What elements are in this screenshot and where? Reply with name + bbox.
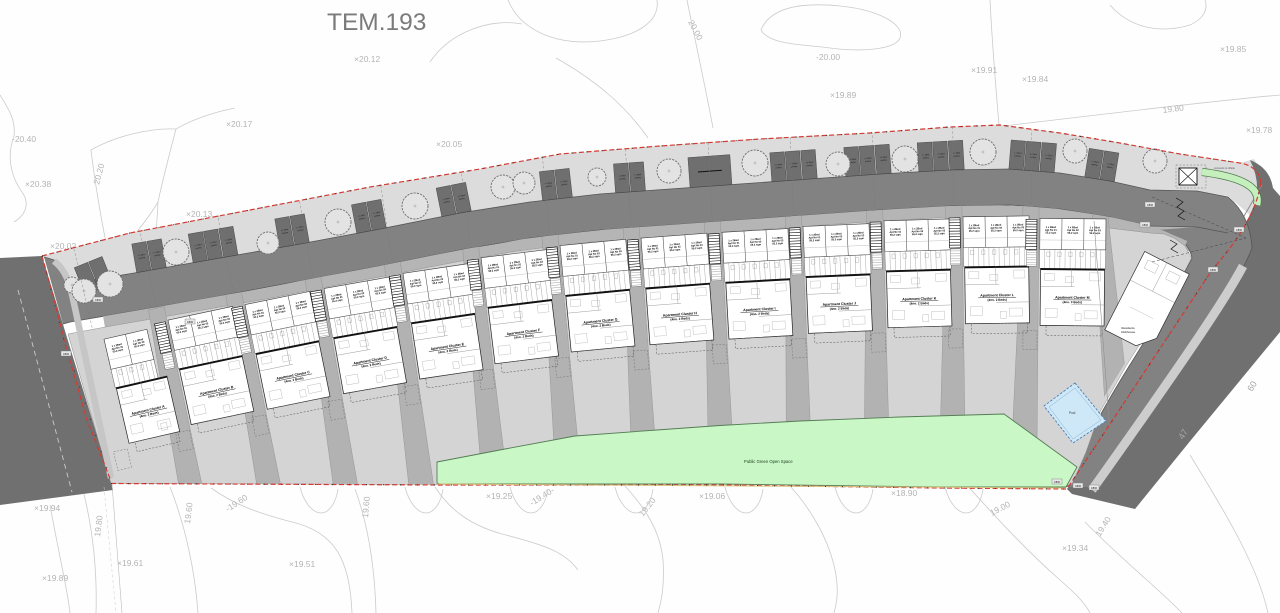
svg-text:55.2 sqm: 55.2 sqm: [831, 238, 843, 241]
svg-text:C800: C800: [1091, 486, 1098, 490]
svg-text:C800: C800: [1236, 228, 1243, 232]
svg-text:(4no. 3 Beds): (4no. 3 Beds): [1063, 300, 1082, 304]
svg-text:×19.84: ×19.84: [1022, 74, 1049, 84]
svg-text:×19.25: ×19.25: [486, 491, 513, 501]
svg-text:1 x 2Bed: 1 x 2Bed: [922, 154, 929, 156]
svg-text:parking: parking: [881, 160, 887, 162]
svg-text:55.2 sqm: 55.2 sqm: [772, 242, 784, 246]
svg-text:parking: parking: [865, 161, 871, 163]
svg-text:×20.17: ×20.17: [226, 119, 253, 129]
svg-text:×19.51: ×19.51: [289, 559, 316, 569]
svg-text:55.2 sqm: 55.2 sqm: [1013, 229, 1025, 232]
svg-text:parking: parking: [776, 167, 782, 169]
svg-text:19.60: 19.60: [360, 496, 372, 518]
svg-text:(4no. 2 Beds): (4no. 2 Beds): [987, 298, 1006, 302]
svg-text:C800: C800: [187, 320, 194, 324]
svg-text:×19.61: ×19.61: [117, 558, 144, 568]
svg-text:×19.94: ×19.94: [34, 503, 61, 513]
svg-text:×19.85: ×19.85: [1220, 44, 1247, 54]
svg-text:C800: C800: [63, 352, 70, 356]
svg-text:Apartment Cluster M: Apartment Cluster M: [1055, 296, 1090, 300]
svg-text:55.2 sqm: 55.2 sqm: [991, 229, 1003, 232]
svg-text:55.2 sqm: 55.2 sqm: [969, 230, 981, 233]
svg-text:Public Green Open Space: Public Green Open Space: [744, 459, 793, 464]
svg-text:×19.89: ×19.89: [42, 573, 69, 583]
svg-text:×19.91: ×19.91: [971, 65, 998, 75]
svg-text:×19.06: ×19.06: [699, 491, 726, 501]
svg-text:1 x 2Bed: 1 x 2Bed: [937, 153, 944, 155]
svg-text:parking: parking: [807, 165, 813, 167]
svg-text:×20.12: ×20.12: [354, 54, 381, 64]
svg-text:55.2 sqm: 55.2 sqm: [912, 233, 924, 236]
svg-text:parking: parking: [850, 162, 856, 164]
svg-text:C800: C800: [1075, 484, 1082, 488]
svg-text:C800: C800: [1054, 480, 1061, 484]
svg-text:55.2 sqm: 55.2 sqm: [728, 244, 740, 248]
svg-text:parking: parking: [635, 177, 641, 179]
svg-text:×19.89: ×19.89: [830, 90, 857, 100]
svg-text:55.2 sqm: 55.2 sqm: [1068, 232, 1080, 235]
svg-text:55.2 sqm: 55.2 sqm: [934, 232, 946, 235]
svg-text:C800: C800: [95, 298, 102, 302]
svg-text:1 x 2Bed: 1 x 2Bed: [953, 152, 960, 154]
svg-text:55.2 sqm: 55.2 sqm: [1046, 232, 1058, 235]
svg-text:parking: parking: [954, 155, 960, 157]
svg-text:parking: parking: [938, 156, 944, 158]
svg-text:×20.05: ×20.05: [436, 139, 463, 149]
svg-text:-20.40: -20.40: [12, 134, 36, 144]
svg-text:Clubhouse: Clubhouse: [1121, 330, 1136, 334]
svg-text:parking: parking: [619, 178, 625, 180]
svg-text:(4no. 2 Beds): (4no. 2 Beds): [910, 301, 930, 306]
svg-text:parking: parking: [791, 166, 797, 168]
svg-text:55.2 sqm: 55.2 sqm: [890, 233, 902, 236]
svg-text:C800: C800: [1147, 203, 1154, 207]
svg-text:C800: C800: [1210, 268, 1217, 272]
svg-text:×18.90: ×18.90: [891, 488, 918, 498]
svg-text:-20.00: -20.00: [816, 52, 840, 62]
svg-text:×19.78: ×19.78: [1246, 125, 1273, 135]
svg-text:parking: parking: [923, 157, 929, 159]
svg-text:55.2 sqm: 55.2 sqm: [750, 243, 762, 247]
svg-text:Pool: Pool: [1069, 411, 1076, 415]
svg-text:×19.34: ×19.34: [1062, 543, 1089, 553]
svg-text:C800: C800: [1142, 223, 1149, 227]
svg-text:55.2 sqm: 55.2 sqm: [809, 239, 821, 242]
svg-text:×20.38: ×20.38: [25, 179, 52, 189]
svg-text:TEM.193: TEM.193: [327, 9, 426, 36]
svg-text:55.2 sqm: 55.2 sqm: [853, 237, 865, 240]
svg-text:(4no. 2 Beds): (4no. 2 Beds): [830, 306, 850, 311]
svg-text:connects to offsite: connects to offsite: [1214, 166, 1235, 170]
